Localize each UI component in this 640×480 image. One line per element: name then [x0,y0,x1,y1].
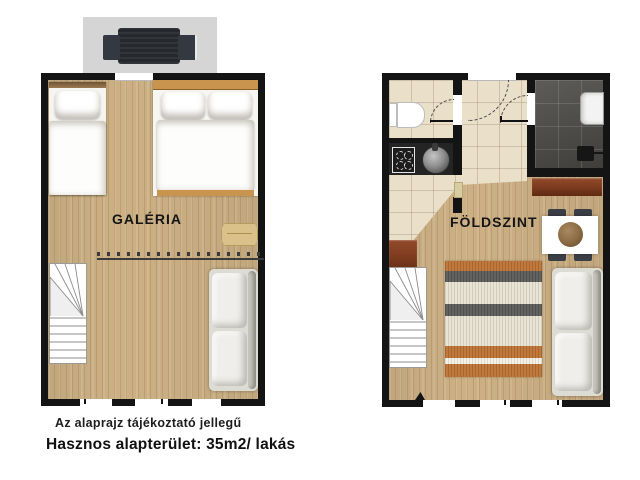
double-bed [153,80,258,196]
window [532,400,562,407]
sofa-cushion [555,272,592,330]
sofa-cushion [212,331,247,386]
sideboard-cabinet [532,178,602,196]
usable-area-text: Hasznos alapterület: 35m2/ lakás [46,436,295,454]
toilet-bowl [397,102,425,128]
wc-door-opening [453,95,462,125]
window-tick [84,399,86,404]
shower-room-floor [535,80,603,168]
stairs-galeria [49,263,87,364]
wall-shelf [221,223,258,246]
wall-shelf-edge [227,233,252,234]
sofa-cushion [212,273,247,328]
room-label-foldszint: FÖLDSZINT [450,214,538,230]
terrace-chair-armrest [178,35,197,60]
terrace [83,17,217,73]
window [480,400,510,407]
table-bowl [558,222,583,247]
single-bed-headboard [49,82,106,88]
sofa-foldszint [552,268,603,396]
sofa-cushion [555,333,592,391]
dining-chair [548,253,566,261]
window [423,400,455,407]
dining-chair [574,253,592,261]
dining-table [542,216,598,254]
double-bed-headboard [153,80,258,90]
faucet [432,143,438,151]
sofa-galeria [209,269,258,391]
wall-shower-left [527,73,535,177]
room-label-galeria: GALÉRIA [112,211,182,227]
window-tick [557,400,559,405]
single-bed [49,82,106,195]
shower-door-opening [527,93,535,125]
pillow [55,91,100,119]
single-bed-duvet [49,121,106,195]
terrace-chair-back [118,28,180,64]
shower-door-leaf-end [500,116,502,122]
terrace-door-opening [115,73,153,81]
cooktop [392,147,415,173]
shower-drain [577,146,594,161]
striped-rug [445,261,542,377]
burner [404,161,413,170]
window-tick [504,400,506,405]
wall-shower-bottom [527,168,603,177]
window [80,399,112,406]
kitchen-counter [389,143,453,175]
floorplan-page: GALÉRIA [0,0,640,480]
window [135,399,168,406]
pillow [208,92,252,119]
toilet-tank [389,103,397,127]
pillow [161,92,205,119]
plan-foldszint: FÖLDSZINT [382,73,610,407]
sofa-backrest [593,270,601,394]
gallery-railing [97,252,264,260]
toilet [389,102,423,126]
wc-door-leaf [430,120,453,122]
double-bed-duvet [157,120,254,190]
stairs-foldszint [389,267,427,368]
shower-door-leaf [500,120,528,122]
window [192,399,221,406]
plan-galeria: GALÉRIA [41,73,265,406]
washbasin [580,92,604,125]
shower-drain-pipe [594,152,603,154]
disclaimer-text: Az alaprajz tájékoztató jellegű [55,416,241,430]
terrace-chair-armrest [103,35,120,60]
burner [404,151,413,160]
double-bed-footboard [157,190,254,196]
window-tick [161,399,163,404]
wall-stub [453,197,462,213]
light-switch-panel [454,182,463,198]
sofa-backrest [248,271,256,389]
